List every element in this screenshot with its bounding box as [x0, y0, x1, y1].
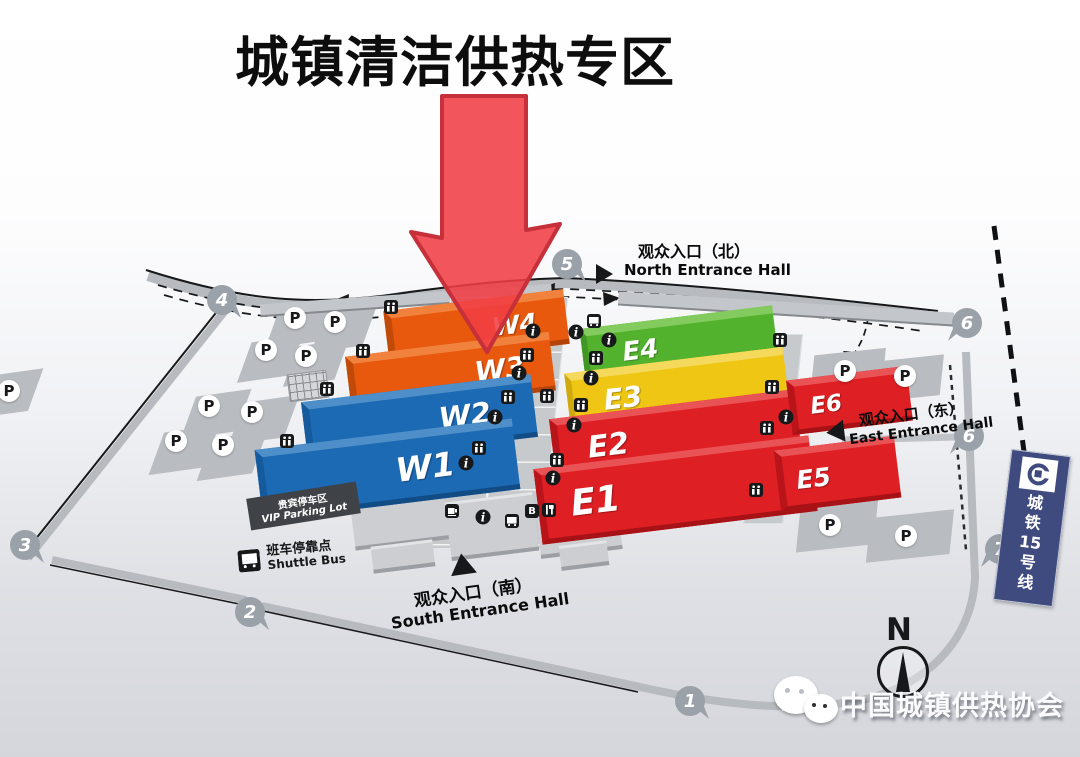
venue-map: P P P P P P P P P P P P P W4 W3 W2 W1 E4…: [0, 0, 1080, 757]
watermark: 中国城镇供热协会: [772, 674, 1064, 732]
callout-arrow-icon: [0, 0, 1080, 757]
watermark-text: 中国城镇供热协会: [840, 684, 1064, 723]
wechat-icon: [772, 674, 838, 732]
page-title: 城镇清洁供热专区: [235, 18, 675, 97]
